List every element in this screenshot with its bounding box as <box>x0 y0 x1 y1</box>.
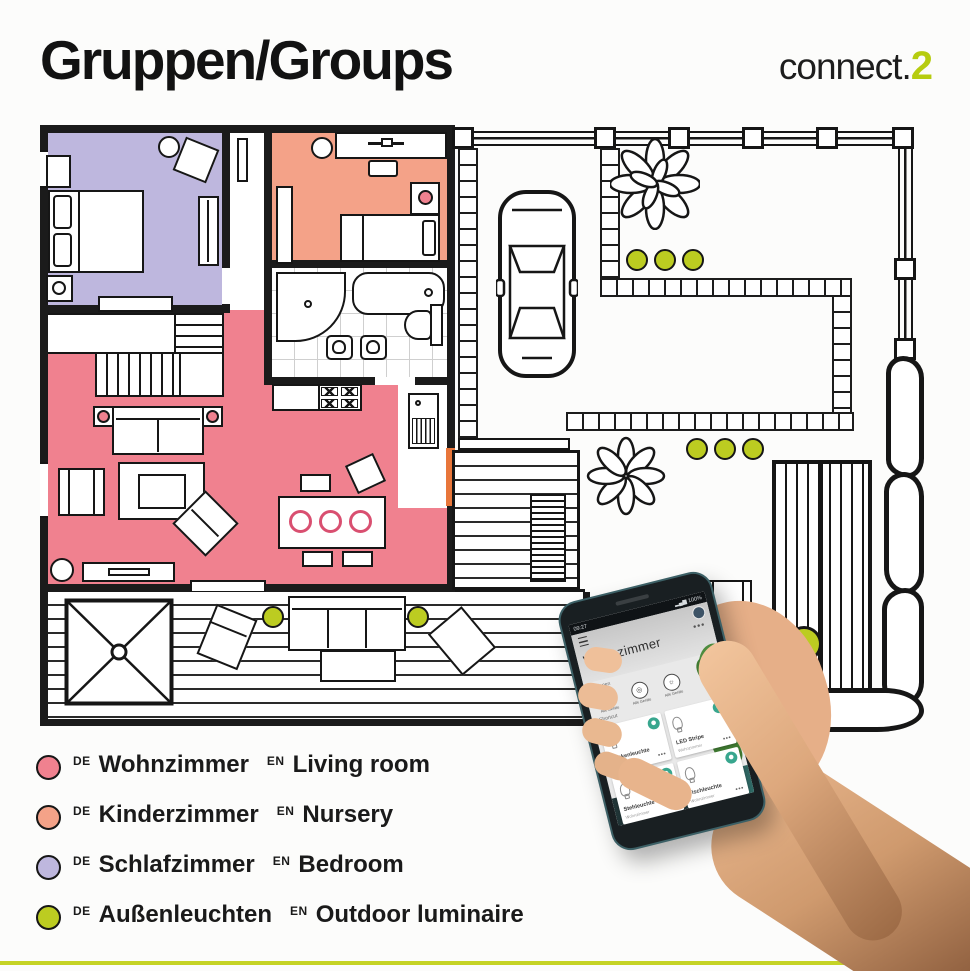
terrace-table <box>320 650 396 682</box>
phone-speaker <box>615 594 649 606</box>
legend-en-name: Outdoor luminaire <box>316 901 524 929</box>
stairs-lower-landing <box>179 352 224 397</box>
outdoor-light-3 <box>682 249 704 271</box>
bedroom-stool <box>158 136 180 158</box>
outdoor-light-1 <box>626 249 648 271</box>
east-deck-step <box>458 438 570 450</box>
device-toggle[interactable] <box>646 716 661 731</box>
bedroom-lamp <box>52 281 66 295</box>
parasol <box>64 598 174 706</box>
terrace-wall-bottom <box>40 719 590 726</box>
bulb-icon <box>684 766 697 781</box>
fence-post-6 <box>892 127 914 149</box>
fence-post-5 <box>816 127 838 149</box>
nursery-blanket-line <box>362 216 364 260</box>
kitchen-counter <box>272 384 320 411</box>
legend-de-name: Außenleuchten <box>99 901 272 929</box>
outdoor-light-terrace-2 <box>407 606 429 628</box>
kitchen-burner-4 <box>341 399 358 408</box>
legend-item-bedroom: DE Schlafzimmer EN Bedroom <box>36 853 404 881</box>
plant-middle <box>586 436 666 516</box>
device-toggle[interactable] <box>724 750 739 765</box>
nursery-side-table-dot <box>418 190 433 205</box>
legend-en-name: Bedroom <box>298 851 403 879</box>
path-house-side <box>458 148 478 438</box>
path-mid <box>600 278 852 297</box>
dining-chair-bottom-2 <box>342 551 373 567</box>
legend-swatch-bedroom <box>36 855 61 880</box>
bath-toilet-bowl <box>404 310 432 340</box>
legend-de-name: Schlafzimmer <box>99 851 255 879</box>
living-armchair-line1 <box>68 470 70 514</box>
kitchen-burner-3 <box>321 399 338 408</box>
stairs-upper-steps <box>174 313 224 354</box>
nursery-stool <box>311 137 333 159</box>
outdoor-light-4 <box>686 438 708 460</box>
fence-post-1 <box>452 127 474 149</box>
wall-nursery-left <box>264 125 272 385</box>
living-armchair <box>58 468 105 516</box>
tv-board-handle <box>108 568 150 576</box>
bath-sink-2-basin <box>366 340 380 354</box>
outdoor-light-terrace-1 <box>262 606 284 628</box>
legend-item-outdoor: DE Außenleuchten EN Outdoor luminaire <box>36 903 524 931</box>
living-coffee-table <box>138 474 186 509</box>
legend-en-tag: EN <box>273 854 291 882</box>
living-sofa-split <box>157 420 159 452</box>
terrace-wall-left <box>40 592 48 726</box>
nursery-desk-lamp-base <box>381 138 393 147</box>
bath-tub-drain <box>424 288 433 297</box>
stairs-landing <box>46 313 176 354</box>
bath-shower-drain <box>304 300 312 308</box>
page: Gruppen/Groups connect.2 <box>0 0 970 971</box>
legend-de-tag: DE <box>73 904 91 918</box>
menu-icon[interactable] <box>578 636 589 647</box>
legend-de-tag: DE <box>73 754 91 768</box>
legend-en-tag: EN <box>290 904 308 932</box>
terrace-sofa <box>288 596 406 651</box>
dining-plate-2 <box>319 510 342 533</box>
legend-item-nursery: DE Kinderzimmer EN Nursery <box>36 803 393 831</box>
door-bathroom <box>375 377 415 385</box>
legend-swatch-nursery <box>36 805 61 830</box>
car <box>496 188 578 380</box>
legend-swatch-living <box>36 755 61 780</box>
stairs-steps <box>95 352 181 397</box>
living-side-table-1-dot <box>97 410 110 423</box>
living-armchair-line2 <box>93 470 95 514</box>
outdoor-light-5 <box>714 438 736 460</box>
dining-plate-3 <box>349 510 372 533</box>
legend-swatch-outdoor <box>36 905 61 930</box>
legend-de-tag: DE <box>73 804 91 818</box>
bedroom-pillow-1 <box>53 195 72 229</box>
fence-post-right-1 <box>894 258 916 280</box>
legend-item-living: DE Wohnzimmer EN Living room <box>36 753 430 781</box>
nursery-chair <box>368 160 398 177</box>
kitchen-burner-2 <box>341 387 358 396</box>
bedroom-dresser <box>98 296 173 312</box>
card-more-icon[interactable]: ••• <box>735 785 745 794</box>
bedroom-pillow-2 <box>53 233 72 267</box>
nursery-pillow <box>422 220 436 256</box>
legend-de-name: Kinderzimmer <box>99 801 259 829</box>
path-bottom <box>566 412 854 431</box>
kitchen-sink-faucet <box>415 400 421 406</box>
plant-top <box>610 138 700 230</box>
door-bedroom <box>222 268 230 304</box>
card-more-icon[interactable]: ••• <box>657 750 667 759</box>
dining-chair-bottom-1 <box>302 551 333 567</box>
terrace-sofa-back <box>292 608 402 610</box>
window-left-2 <box>40 462 48 518</box>
nursery-wardrobe <box>276 186 293 264</box>
path-down <box>832 295 852 415</box>
legend-en-name: Living room <box>293 751 430 779</box>
door-hall-leaf <box>237 138 248 182</box>
bulb-icon <box>671 716 684 731</box>
legend-de-tag: DE <box>73 854 91 868</box>
legend-en-tag: EN <box>267 754 285 782</box>
outdoor-light-2 <box>654 249 676 271</box>
legend-en-name: Nursery <box>302 801 393 829</box>
wall-left <box>40 125 48 592</box>
dining-chair-top <box>300 474 331 492</box>
terrace-sofa-split2 <box>365 610 367 648</box>
living-side-table-2-dot <box>206 410 219 423</box>
action-all-devices-3[interactable]: ☼ Alle Geräte <box>659 671 686 698</box>
dining-plate-1 <box>289 510 312 533</box>
bedroom-cabinet-line <box>207 200 209 262</box>
legend-de-name: Wohnzimmer <box>99 751 249 779</box>
legend-en-tag: EN <box>277 804 295 832</box>
bedroom-wardrobe <box>46 155 71 188</box>
card-more-icon[interactable]: ••• <box>722 734 732 743</box>
terrace-sofa-split1 <box>327 610 329 648</box>
hedge-right-2 <box>884 472 924 594</box>
outdoor-light-6 <box>742 438 764 460</box>
bedroom-blanket-line <box>78 192 80 271</box>
bath-sink-1-basin <box>332 340 346 354</box>
hallway <box>228 130 268 310</box>
fence-post-4 <box>742 127 764 149</box>
living-stool <box>50 558 74 582</box>
bottom-accent-line <box>0 961 970 965</box>
east-deck-mat <box>530 494 566 582</box>
kitchen-sink-drainer <box>412 418 435 444</box>
hedge-right-1 <box>886 356 924 478</box>
kitchen-burner-1 <box>321 387 338 396</box>
action-all-devices-2[interactable]: ◎ Alle Geräte <box>627 679 654 706</box>
